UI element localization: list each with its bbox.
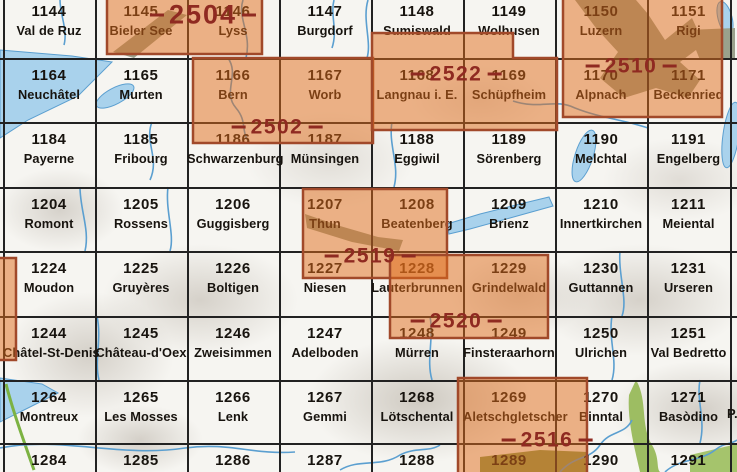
sheet-cell-1189[interactable]: 1189Sörenberg [463,122,555,187]
label-dash [401,255,415,258]
edge-partial-sheet-name[interactable]: P. [727,406,737,421]
sheet-cell-1210[interactable]: 1210Innertkirchen [555,187,647,251]
sheet-name: Lötschental [371,409,463,424]
sheet-number: 1231 [647,260,730,278]
sheet-number: 1245 [95,325,187,343]
sheet-name: Sörenberg [463,151,555,166]
sheet-name: Montreux [3,409,95,424]
sheet-number: 1251 [647,325,730,343]
label-dash [502,439,516,442]
composite-number: 2519 [344,246,397,267]
sheet-name: Schwarzenburg [187,151,279,166]
label-dash [578,439,592,442]
sheet-cell-1225[interactable]: 1225Gruyères [95,251,187,316]
sheet-cell-1246[interactable]: 1246Zweisimmen [187,316,279,380]
sheet-number: 1265 [95,389,187,407]
sheet-name: Mürren [371,345,463,360]
grid-line [730,0,732,472]
sheet-number: 1206 [187,196,279,214]
sheet-number: 1165 [95,67,187,85]
sheet-cell-1204[interactable]: 1204Romont [3,187,95,251]
sheet-number: 1209 [463,196,555,214]
sheet-name: Gruyères [95,280,187,295]
sheet-name: Lenk [187,409,279,424]
sheet-name: Finsteraarhorn [463,345,555,360]
sheet-name: Urseren [647,280,730,295]
sheet-cell-1247[interactable]: 1247Adelboden [279,316,371,380]
sheet-cell-1211[interactable]: 1211Meiental [647,187,730,251]
composite-region-edge-sliver[interactable] [0,258,16,360]
sheet-cell-1144[interactable]: 1144Val de Ruz [3,0,95,58]
sheet-name: Basòdino [647,409,730,424]
sheet-number: 1268 [371,389,463,407]
sheet-name: Rossens [95,216,187,231]
sheet-name: Engelberg [647,151,730,166]
sheet-cell-1185[interactable]: 1185Fribourg [95,122,187,187]
sheet-name: Murten [95,87,187,102]
sheet-cell-1287[interactable]: 1287 [279,443,371,472]
sheet-cell-1268[interactable]: 1268Lötschental [371,380,463,443]
composite-label-2516[interactable]: 2516 [502,430,593,451]
sheet-cell-1251[interactable]: 1251Val Bedretto [647,316,730,380]
sheet-number: 1230 [555,260,647,278]
sheet-cell-1190[interactable]: 1190Melchtal [555,122,647,187]
sheet-cell-1284[interactable]: 1284 [3,443,95,472]
sheet-name: Romont [3,216,95,231]
sheet-cell-1250[interactable]: 1250Ulrichen [555,316,647,380]
label-dash [242,14,256,17]
sheet-name: Adelboden [279,345,371,360]
composite-number: 2510 [605,56,658,77]
sheet-cell-1264[interactable]: 1264Montreux [3,380,95,443]
sheet-name: Innertkirchen [555,216,647,231]
sheet-cell-1245[interactable]: 1245Château-d'Oex [95,316,187,380]
sheet-cell-1205[interactable]: 1205Rossens [95,187,187,251]
label-dash [662,65,676,68]
sheet-number: 1164 [3,67,95,85]
composite-label-2504[interactable]: 2504 [150,2,256,29]
sheet-cell-1265[interactable]: 1265Les Mosses [95,380,187,443]
sheet-name: Ulrichen [555,345,647,360]
sheet-name: Boltigen [187,280,279,295]
composite-number: 2502 [251,117,304,138]
sheet-name: Melchtal [555,151,647,166]
sheet-number: 1225 [95,260,187,278]
label-dash [325,255,339,258]
composite-label-2522[interactable]: 2522 [411,64,502,85]
sheet-name: Val de Ruz [3,23,95,38]
sheet-cell-1226[interactable]: 1226Boltigen [187,251,279,316]
sheet-number: 1148 [371,3,463,21]
composite-label-2510[interactable]: 2510 [586,56,677,77]
sheet-number: 1191 [647,131,730,149]
label-dash [411,320,425,323]
composite-number: 2516 [521,430,574,451]
sheet-number: 1144 [3,3,95,21]
sheet-cell-1266[interactable]: 1266Lenk [187,380,279,443]
sheet-number: 1149 [463,3,555,21]
sheet-number: 1204 [3,196,95,214]
sheet-name: Fribourg [95,151,187,166]
sheet-number: 1287 [279,452,371,470]
sheet-name: Neuchâtel [3,87,95,102]
label-dash [411,73,425,76]
sheet-number: 1291 [647,452,730,470]
composite-label-2502[interactable]: 2502 [232,117,323,138]
sheet-name: Gemmi [279,409,371,424]
sheet-cell-1184[interactable]: 1184Payerne [3,122,95,187]
sheet-number: 1266 [187,389,279,407]
sheet-name: Niesen [279,280,371,295]
label-dash [586,65,600,68]
sheet-name: Les Mosses [95,409,187,424]
sheet-number: 1188 [371,131,463,149]
label-dash [150,14,164,17]
sheet-cell-1288[interactable]: 1288 [371,443,463,472]
sheet-cell-1286[interactable]: 1286 [187,443,279,472]
composite-label-2519[interactable]: 2519 [325,246,416,267]
sheet-number: 1250 [555,325,647,343]
sheet-number: 1205 [95,196,187,214]
sheet-number: 1264 [3,389,95,407]
sheet-cell-1164[interactable]: 1164Neuchâtel [3,58,95,122]
sheet-number: 1147 [279,3,371,21]
label-dash [232,126,246,129]
sheet-name: Château-d'Oex [95,345,187,360]
sheet-cell-1165[interactable]: 1165Murten [95,58,187,122]
label-dash [308,126,322,129]
sheet-number: 1286 [187,452,279,470]
composite-number: 2520 [430,311,483,332]
sheet-name: Guttannen [555,280,647,295]
composite-region-2516[interactable] [458,378,587,472]
sheet-cell-1231[interactable]: 1231Urseren [647,251,730,316]
sheet-name: Payerne [3,151,95,166]
sheet-name: Münsingen [279,151,371,166]
sheet-cell-1271[interactable]: 1271Basòdino [647,380,730,443]
map-sheet-index: 1144Val de Ruz1145Bieler See1146Lyss1147… [0,0,737,472]
sheet-number: 1267 [279,389,371,407]
sheet-number: 1247 [279,325,371,343]
sheet-cell-1209[interactable]: 1209Brienz [463,187,555,251]
label-dash [487,73,501,76]
sheet-name: Guggisberg [187,216,279,231]
sheet-number: 1210 [555,196,647,214]
sheet-number: 1189 [463,131,555,149]
sheet-number: 1185 [95,131,187,149]
sheet-number: 1284 [3,452,95,470]
sheet-number: 1211 [647,196,730,214]
sheet-number: 1271 [647,389,730,407]
sheet-name: Val Bedretto [647,345,730,360]
sheet-name: Meiental [647,216,730,231]
sheet-name: Brienz [463,216,555,231]
sheet-number: 1288 [371,452,463,470]
composite-number: 2522 [430,64,483,85]
sheet-name: Burgdorf [279,23,371,38]
sheet-cell-1291[interactable]: 1291 [647,443,730,472]
sheet-number: 1184 [3,131,95,149]
sheet-number: 1246 [187,325,279,343]
sheet-cell-1285[interactable]: 1285 [95,443,187,472]
sheet-cell-1206[interactable]: 1206Guggisberg [187,187,279,251]
sheet-number: 1226 [187,260,279,278]
sheet-cell-1267[interactable]: 1267Gemmi [279,380,371,443]
sheet-cell-1188[interactable]: 1188Eggiwil [371,122,463,187]
sheet-cell-1230[interactable]: 1230Guttannen [555,251,647,316]
sheet-cell-1147[interactable]: 1147Burgdorf [279,0,371,58]
composite-label-2520[interactable]: 2520 [411,311,502,332]
sheet-number: 1190 [555,131,647,149]
sheet-name: Zweisimmen [187,345,279,360]
sheet-cell-1191[interactable]: 1191Engelberg [647,122,730,187]
sheet-name: Eggiwil [371,151,463,166]
sheet-number: 1285 [95,452,187,470]
composite-number: 2504 [169,2,237,29]
label-dash [487,320,501,323]
